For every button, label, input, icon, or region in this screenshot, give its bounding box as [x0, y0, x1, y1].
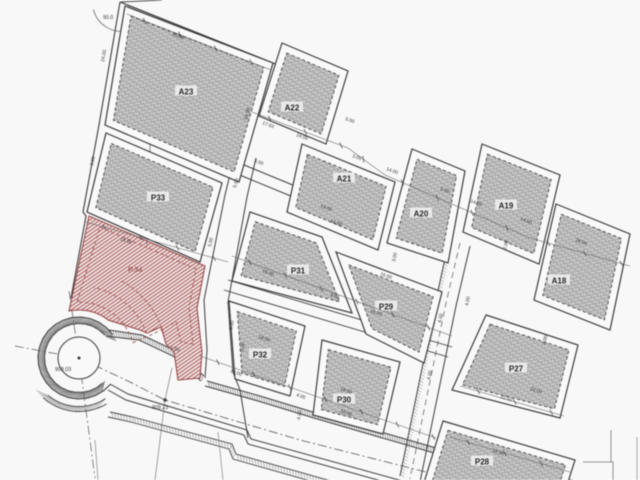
svg-text:90.0: 90.0 [103, 15, 113, 21]
svg-text:909.23: 909.23 [152, 405, 168, 411]
svg-text:A21: A21 [337, 175, 352, 184]
svg-text:A23: A23 [179, 88, 194, 97]
svg-text:A22: A22 [285, 104, 300, 113]
svg-text:908.03: 908.03 [55, 367, 71, 373]
svg-text:P32: P32 [253, 351, 268, 360]
svg-text:P30: P30 [337, 396, 352, 405]
svg-text:A19: A19 [499, 202, 514, 211]
svg-text:P31: P31 [291, 267, 306, 276]
svg-text:A18: A18 [552, 277, 567, 286]
svg-text:P28: P28 [475, 458, 490, 467]
svg-text:P.34: P.34 [128, 265, 142, 274]
svg-text:P33: P33 [151, 194, 166, 203]
svg-text:P27: P27 [509, 365, 524, 374]
svg-text:A20: A20 [414, 210, 429, 219]
